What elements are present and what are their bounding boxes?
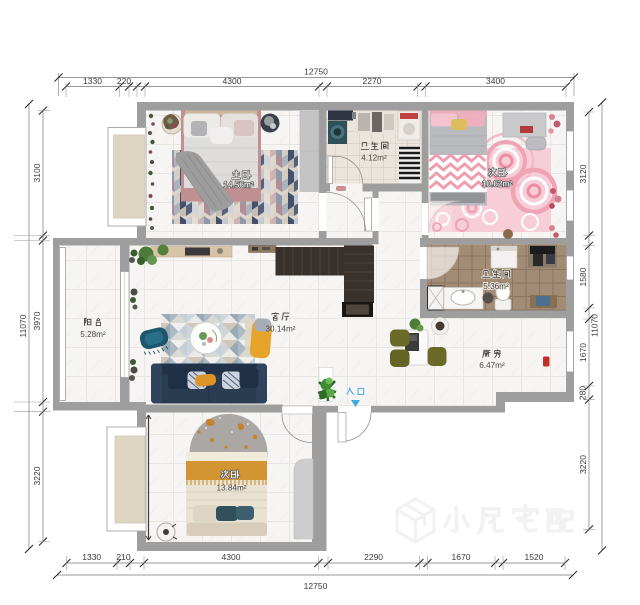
svg-text:11070: 11070	[590, 314, 600, 337]
svg-text:210: 210	[116, 552, 130, 562]
svg-text:4300: 4300	[223, 76, 242, 86]
svg-text:5.28m²: 5.28m²	[80, 330, 106, 339]
svg-text:3120: 3120	[578, 164, 588, 183]
svg-text:30.14m²: 30.14m²	[265, 325, 295, 334]
svg-text:4300: 4300	[222, 552, 241, 562]
svg-text:13.84m²: 13.84m²	[216, 484, 246, 493]
svg-text:220: 220	[117, 76, 131, 86]
svg-text:10.62m²: 10.62m²	[482, 180, 512, 189]
svg-text:6.47m²: 6.47m²	[479, 361, 505, 370]
svg-text:1580: 1580	[578, 267, 588, 286]
svg-text:2270: 2270	[363, 76, 382, 86]
svg-text:3400: 3400	[486, 76, 505, 86]
svg-text:3100: 3100	[32, 163, 42, 182]
svg-text:12750: 12750	[304, 67, 328, 77]
svg-text:3220: 3220	[578, 455, 588, 474]
svg-text:280: 280	[578, 386, 588, 400]
svg-text:12750: 12750	[304, 581, 328, 591]
svg-text:4.12m²: 4.12m²	[361, 154, 387, 163]
svg-text:1670: 1670	[452, 552, 471, 562]
svg-text:14.56m²: 14.56m²	[223, 181, 253, 190]
svg-text:1330: 1330	[83, 76, 102, 86]
svg-text:1520: 1520	[525, 552, 544, 562]
svg-text:3970: 3970	[32, 311, 42, 330]
svg-text:1330: 1330	[82, 552, 101, 562]
svg-text:1670: 1670	[578, 343, 588, 362]
svg-text:11070: 11070	[18, 314, 28, 337]
svg-text:2290: 2290	[364, 552, 383, 562]
svg-text:3220: 3220	[32, 466, 42, 485]
svg-text:5.36m²: 5.36m²	[483, 282, 509, 291]
